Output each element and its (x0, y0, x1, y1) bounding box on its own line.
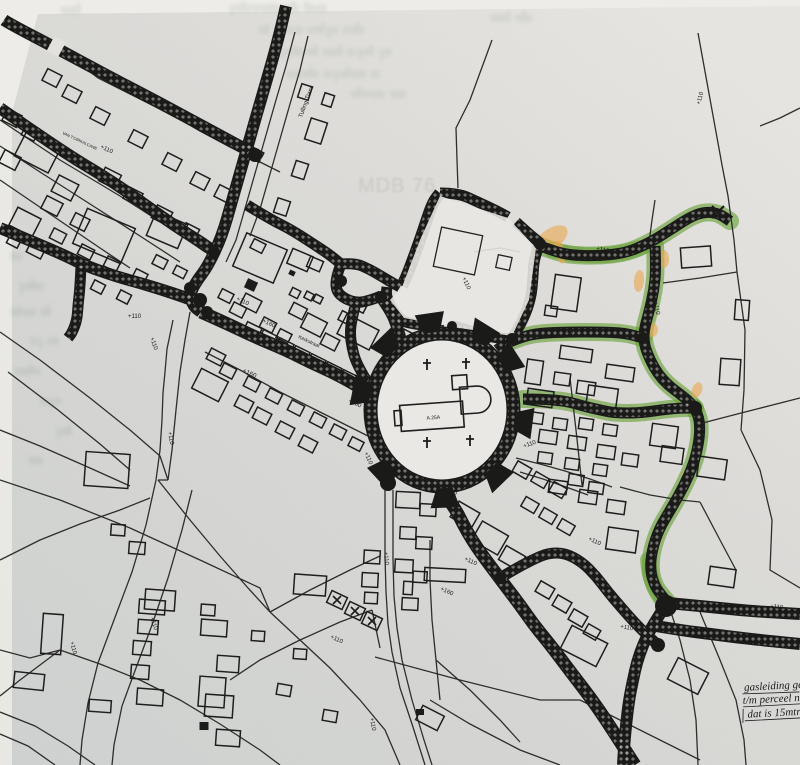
svg-text:ɿɘƚ: ɿɘƚ (55, 423, 73, 439)
svg-text:ɘʜƚ: ɘʜƚ (60, 1, 81, 18)
svg-text:A.25A: A.25A (426, 415, 441, 422)
svg-text:ɘʜ: ɘʜ (28, 452, 44, 468)
svg-text:ɘƚɘɘʜ ɘʜ: ɘƚɘɘʜ ɘʜ (350, 85, 405, 102)
svg-text:+110: +110 (770, 604, 784, 611)
svg-text:ɘƨ: ɘƨ (10, 248, 23, 264)
svg-text:ɿɘƚɒ: ɿɘƚɒ (18, 278, 44, 294)
svg-text:+110: +110 (382, 552, 389, 566)
svg-text:ɘƚɘʜ ɘƚ: ɘƚɘʜ ɘƚ (10, 304, 52, 320)
svg-text:ɒɿɘ: ɒɿɘ (40, 393, 62, 409)
svg-text:+110: +110 (128, 314, 142, 320)
svg-text:ɘʜƚ ɘƚƨ: ɘʜƚ ɘƚƨ (490, 9, 533, 26)
svg-text:ɘʜƚɘ: ɘʜƚɘ (14, 363, 40, 379)
svg-text:MDB 76: MDB 76 (358, 175, 436, 197)
svg-text:ɿɘƚƨɘɘm ɘb ƚɒʜ: ɿɘƚƨɘɘm ɘb ƚɒʜ (228, 0, 327, 16)
svg-text:ɘɿ ƨɘ: ɘɿ ƨɘ (30, 333, 59, 349)
